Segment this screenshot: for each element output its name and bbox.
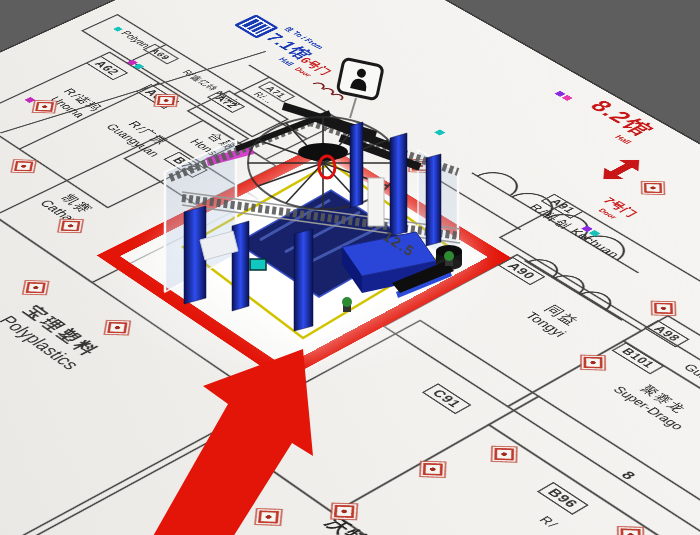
floorplan-screenshot: 往 To / From 7.1馆 Hall 6号门 Door 8.2馆 Hall… (0, 0, 700, 535)
person-sign-icon (337, 58, 383, 100)
teal-screen (250, 259, 266, 270)
booth-3d-render (0, 0, 700, 535)
white-signboard (368, 178, 384, 226)
location-arrow-icon (148, 349, 313, 535)
